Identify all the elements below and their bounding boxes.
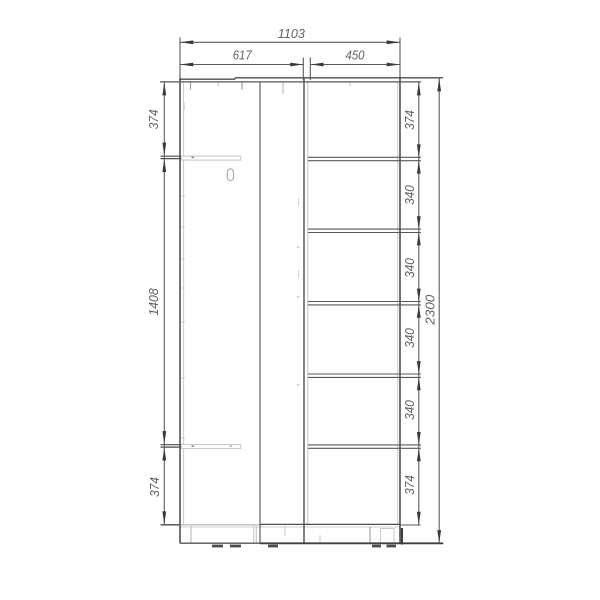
svg-text:374: 374 (402, 110, 417, 130)
svg-text:374: 374 (147, 477, 162, 497)
svg-text:340: 340 (402, 258, 417, 278)
svg-text:450: 450 (346, 48, 366, 63)
svg-text:2300: 2300 (423, 294, 438, 326)
svg-text:340: 340 (402, 185, 417, 205)
svg-text:340: 340 (402, 328, 417, 348)
svg-text:617: 617 (233, 48, 253, 63)
svg-text:1408: 1408 (146, 288, 161, 316)
svg-text:374: 374 (146, 109, 161, 129)
svg-text:340: 340 (402, 400, 417, 420)
svg-text:374: 374 (402, 475, 417, 495)
svg-text:1103: 1103 (278, 26, 306, 41)
